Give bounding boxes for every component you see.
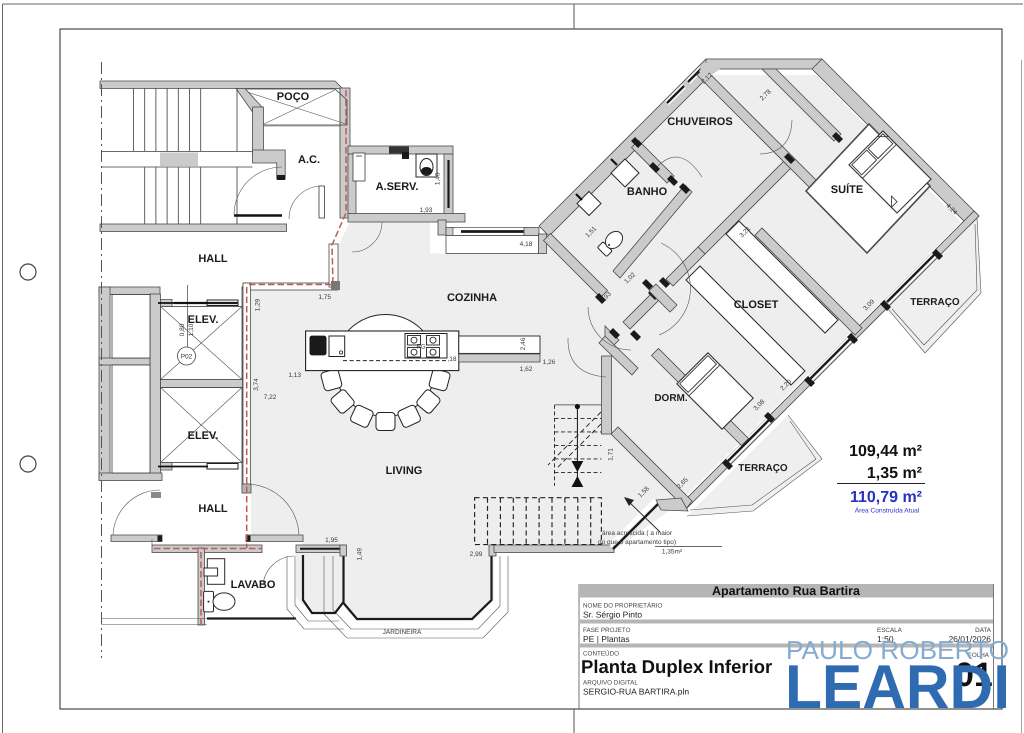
- svg-text:TERRAÇO: TERRAÇO: [910, 297, 960, 308]
- svg-text:1,35m²: 1,35m²: [662, 549, 683, 556]
- svg-text:1,35 m²: 1,35 m²: [867, 465, 922, 482]
- svg-text:ELEV.: ELEV.: [188, 430, 219, 442]
- svg-text:1,71: 1,71: [608, 448, 615, 461]
- svg-text:COZINHA: COZINHA: [447, 292, 497, 304]
- svg-text:Área Construída Atual: Área Construída Atual: [855, 507, 920, 515]
- svg-text:1,75: 1,75: [318, 294, 331, 301]
- svg-text:BANHO: BANHO: [627, 186, 668, 198]
- svg-text:110,79 m²: 110,79 m²: [850, 489, 922, 506]
- svg-text:PE | Plantas: PE | Plantas: [583, 634, 630, 644]
- svg-text:NOME DO PROPRIETÁRIO: NOME DO PROPRIETÁRIO: [583, 602, 663, 610]
- svg-text:A.SERV.: A.SERV.: [376, 181, 419, 193]
- svg-text:ESCALA: ESCALA: [877, 627, 903, 634]
- svg-text:2,99: 2,99: [470, 551, 483, 558]
- svg-text:TERRAÇO: TERRAÇO: [738, 463, 788, 474]
- svg-text:CHUVEIROS: CHUVEIROS: [667, 116, 732, 128]
- svg-text:0,80: 0,80: [179, 323, 186, 336]
- svg-text:SUÍTE: SUÍTE: [831, 183, 863, 196]
- svg-text:CLOSET: CLOSET: [734, 299, 779, 311]
- svg-text:1,40: 1,40: [435, 172, 442, 185]
- svg-text:LAVABO: LAVABO: [231, 579, 276, 591]
- svg-text:A.C.: A.C.: [298, 154, 320, 166]
- svg-text:HALL: HALL: [198, 253, 228, 265]
- svg-text:DORM.: DORM.: [654, 393, 688, 404]
- svg-text:3,74: 3,74: [253, 378, 260, 391]
- svg-text:1,29: 1,29: [255, 298, 262, 311]
- svg-text:ELEV.: ELEV.: [188, 314, 219, 326]
- svg-text:1,13: 1,13: [288, 372, 301, 379]
- svg-text:1,93: 1,93: [420, 207, 433, 214]
- svg-text:DATA: DATA: [975, 627, 992, 634]
- svg-text:2,46: 2,46: [520, 337, 527, 350]
- svg-text:1,49: 1,49: [357, 548, 364, 561]
- svg-text:do que o apartamento tipo): do que o apartamento tipo): [598, 539, 676, 546]
- svg-text:,18: ,18: [447, 356, 456, 363]
- svg-text:ARQUIVO DIGITAL: ARQUIVO DIGITAL: [583, 680, 638, 687]
- svg-text:POÇO: POÇO: [277, 91, 310, 103]
- svg-text:P02: P02: [181, 354, 193, 361]
- svg-text:LIVING: LIVING: [386, 465, 423, 477]
- svg-text:7,22: 7,22: [264, 394, 277, 401]
- svg-text:109,44 m²: 109,44 m²: [849, 443, 922, 460]
- svg-text:SERGIO-RUA BARTIRA.pln: SERGIO-RUA BARTIRA.pln: [583, 687, 689, 697]
- svg-text:Apartamento Rua Bartira: Apartamento Rua Bartira: [712, 584, 861, 598]
- svg-text:área acrescida ( a maior: área acrescida ( a maior: [602, 530, 673, 537]
- svg-text:HALL: HALL: [198, 503, 228, 515]
- svg-text:1,95: 1,95: [325, 537, 338, 544]
- svg-text:FG: FG: [416, 344, 425, 351]
- svg-text:1,62: 1,62: [520, 366, 533, 373]
- svg-text:Planta Duplex Inferior: Planta Duplex Inferior: [581, 656, 772, 677]
- svg-text:4,18: 4,18: [520, 241, 533, 248]
- svg-text:JARDINEIRA: JARDINEIRA: [383, 629, 422, 636]
- svg-text:LEARDI: LEARDI: [785, 653, 1010, 722]
- svg-text:Sr. Sérgio Pinto: Sr. Sérgio Pinto: [583, 610, 642, 620]
- svg-text:1,26: 1,26: [543, 359, 556, 366]
- svg-text:FASE PROJETO: FASE PROJETO: [583, 627, 631, 634]
